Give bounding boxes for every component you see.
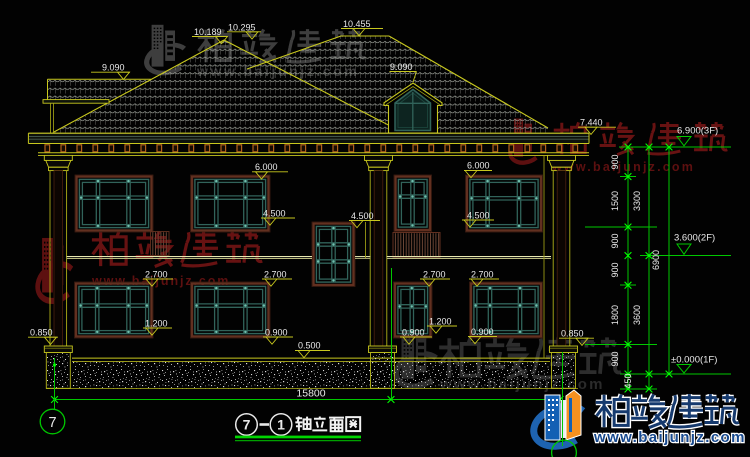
- svg-text:6.900(3F): 6.900(3F): [677, 126, 718, 137]
- svg-text:3300: 3300: [632, 191, 642, 211]
- svg-text:6.000: 6.000: [467, 161, 490, 171]
- svg-text:0.900: 0.900: [265, 328, 288, 338]
- svg-text:1: 1: [277, 417, 285, 433]
- svg-text:10.189: 10.189: [194, 27, 222, 37]
- svg-text:6900: 6900: [651, 250, 661, 270]
- svg-text:9.090: 9.090: [390, 62, 413, 72]
- svg-text:1500: 1500: [610, 191, 620, 211]
- svg-text:7: 7: [48, 415, 56, 431]
- svg-text:2.700: 2.700: [264, 270, 287, 280]
- svg-text:1.200: 1.200: [145, 319, 168, 329]
- svg-text:3600: 3600: [632, 305, 642, 325]
- svg-text:0.850: 0.850: [30, 328, 53, 338]
- svg-text:900: 900: [610, 262, 620, 277]
- svg-text:3.600(2F): 3.600(2F): [674, 233, 715, 244]
- svg-text:0.500: 0.500: [298, 341, 321, 351]
- svg-text:450: 450: [623, 373, 633, 388]
- svg-text:2.700: 2.700: [423, 269, 446, 279]
- svg-text:0.900: 0.900: [471, 327, 494, 337]
- svg-text:15800: 15800: [296, 388, 325, 400]
- svg-text:0.850: 0.850: [561, 329, 584, 339]
- svg-text:10.295: 10.295: [228, 23, 256, 33]
- svg-text:900: 900: [610, 154, 620, 169]
- svg-text:www.baijunjz.com: www.baijunjz.com: [593, 429, 746, 446]
- svg-text:7: 7: [243, 417, 251, 433]
- svg-text:0.900: 0.900: [402, 328, 425, 338]
- svg-text:4.500: 4.500: [351, 211, 374, 221]
- svg-text:4.500: 4.500: [467, 210, 490, 220]
- svg-text:900: 900: [610, 233, 620, 248]
- svg-text:900: 900: [610, 351, 620, 366]
- svg-text:9.090: 9.090: [102, 63, 125, 73]
- svg-text:±0.000(1F): ±0.000(1F): [671, 355, 717, 366]
- svg-text:7.440: 7.440: [580, 118, 603, 128]
- svg-text:4.500: 4.500: [263, 209, 286, 219]
- svg-text:2.700: 2.700: [145, 270, 168, 280]
- svg-text:10.455: 10.455: [343, 19, 371, 29]
- svg-text:6.000: 6.000: [255, 162, 278, 172]
- svg-text:2.700: 2.700: [471, 269, 494, 279]
- svg-text:1800: 1800: [610, 305, 620, 325]
- svg-text:1.200: 1.200: [429, 317, 452, 327]
